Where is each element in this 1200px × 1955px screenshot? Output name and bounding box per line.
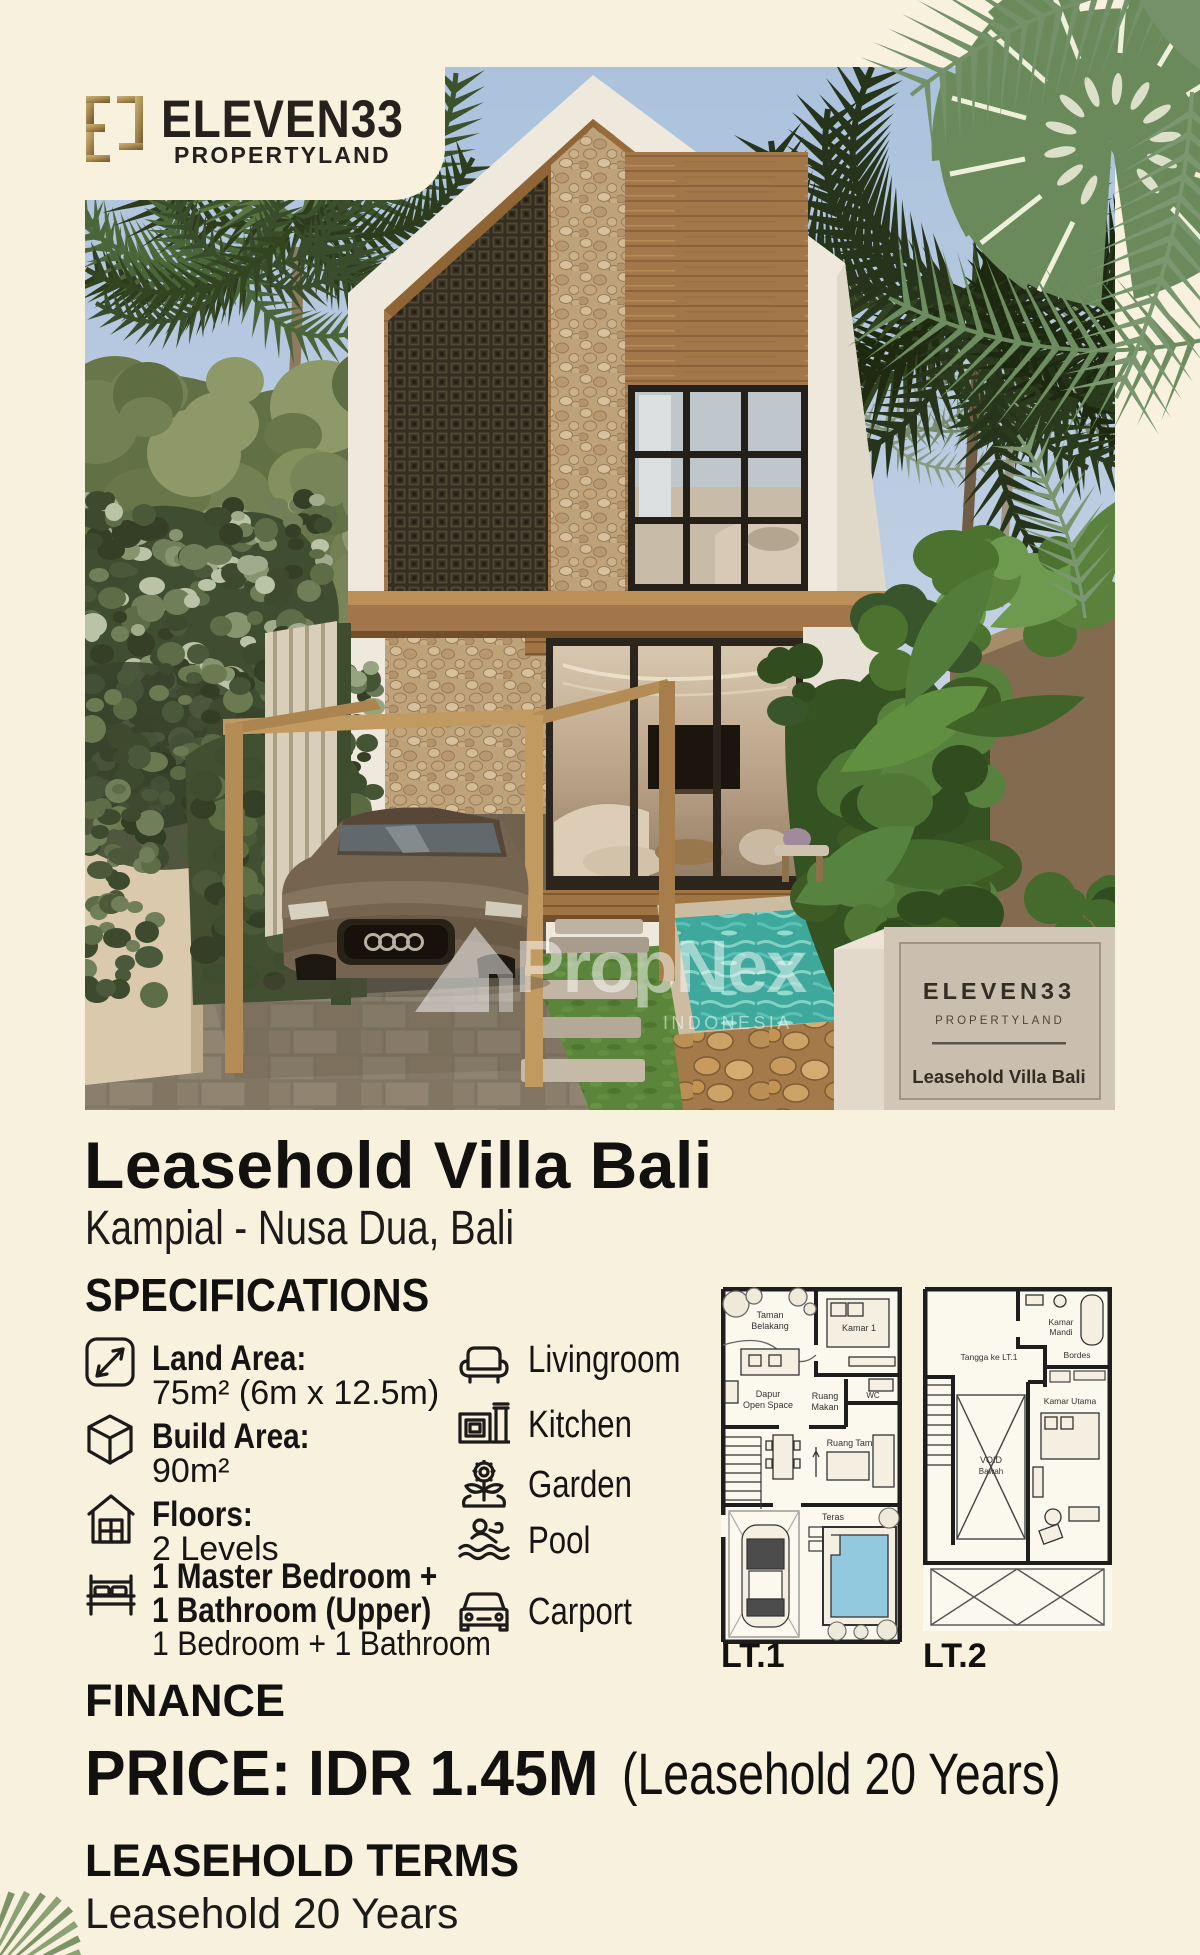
svg-text:INDONESIA: INDONESIA	[663, 1013, 793, 1033]
svg-text:WC: WC	[866, 1391, 880, 1400]
svg-text:PropNex: PropNex	[515, 925, 807, 1008]
svg-text:Bawah: Bawah	[979, 1467, 1003, 1476]
svg-text:Kamar 1: Kamar 1	[842, 1323, 876, 1333]
svg-text:Belakang: Belakang	[751, 1321, 789, 1331]
svg-text:VOID: VOID	[980, 1455, 1003, 1465]
svg-text:Kamar Utama: Kamar Utama	[1044, 1396, 1097, 1406]
svg-text:Teras: Teras	[822, 1512, 845, 1522]
svg-text:Makan: Makan	[811, 1402, 838, 1412]
svg-text:Mandi: Mandi	[1049, 1327, 1072, 1337]
svg-text:Taman: Taman	[756, 1310, 783, 1320]
svg-text:Dapur: Dapur	[756, 1389, 781, 1399]
svg-text:Tangga ke LT.1: Tangga ke LT.1	[960, 1352, 1017, 1362]
svg-text:Bordes: Bordes	[1064, 1350, 1091, 1360]
svg-text:Open Space: Open Space	[743, 1400, 793, 1410]
svg-text:Ruang: Ruang	[812, 1391, 839, 1401]
svg-text:Ruang Tamu: Ruang Tamu	[827, 1438, 878, 1448]
svg-text:Kamar: Kamar	[1048, 1317, 1073, 1327]
